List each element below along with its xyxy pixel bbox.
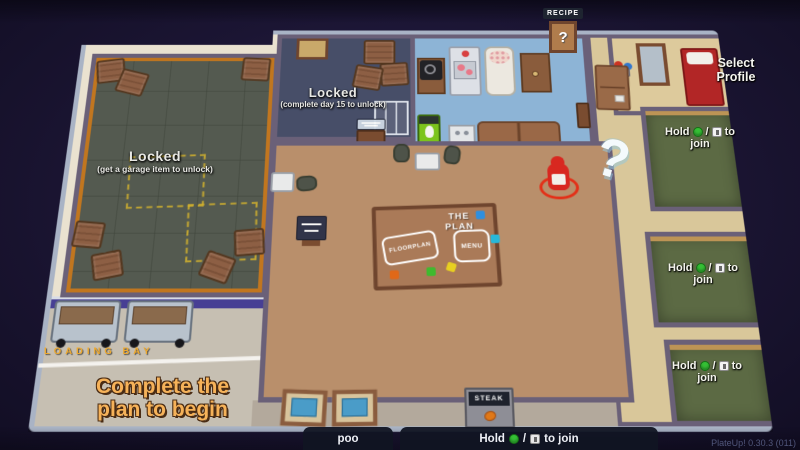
complete-plan-message: Complete the plan to begin <box>35 376 290 421</box>
join-bar-pill[interactable]: Hold / to join <box>400 427 658 450</box>
crate[interactable] <box>234 228 265 257</box>
outdoor-table[interactable] <box>332 389 378 426</box>
join-slash: / <box>706 126 709 138</box>
garage-locked-title: Locked <box>65 148 245 164</box>
gamepad-button-icon <box>700 361 710 371</box>
mirror[interactable] <box>635 43 670 86</box>
chair[interactable] <box>393 144 410 163</box>
kitchen-counter[interactable] <box>520 53 552 93</box>
cart-top <box>59 306 115 324</box>
storage-locked-label: Locked (complete day 15 to unlock) <box>263 85 403 110</box>
sink-tap <box>455 131 460 135</box>
bin-puff <box>425 126 434 138</box>
chair[interactable] <box>296 175 318 192</box>
crate[interactable] <box>90 249 124 281</box>
join-hold-text: Hold <box>672 360 696 372</box>
keyboard-key-icon <box>715 263 725 273</box>
chef-apron <box>551 174 565 185</box>
chip-yellow[interactable] <box>446 262 457 273</box>
loading-cart[interactable] <box>123 300 194 342</box>
join-slash: / <box>709 262 712 274</box>
menu-button[interactable]: MENU <box>453 229 492 262</box>
join-room-1[interactable] <box>640 107 747 211</box>
complete-plan-line2: plan to begin <box>35 399 290 422</box>
door-sign <box>357 119 386 130</box>
crate[interactable] <box>241 57 272 81</box>
steak-sign-label: STEAK <box>469 392 510 406</box>
sign-base <box>302 240 320 246</box>
keyboard-key-icon <box>712 127 722 137</box>
crate[interactable] <box>363 40 395 64</box>
garage-room <box>60 54 279 298</box>
join-join-text: join <box>635 138 765 150</box>
cart-top <box>132 306 188 324</box>
kitchen-door[interactable] <box>576 103 591 129</box>
steak-in-fridge <box>457 64 465 71</box>
table-menu-card <box>290 398 317 417</box>
fridge[interactable] <box>448 47 481 96</box>
player-name: poo <box>337 433 358 445</box>
fridge-window <box>453 61 476 79</box>
steak-menu-board[interactable]: STEAK <box>464 388 515 429</box>
join-tojoin-text: to join <box>544 433 579 445</box>
garage-locked-subtitle: (get a garage item to unlock) <box>95 164 215 174</box>
dining-room: THE PLAN FLOORPLAN MENU <box>258 141 635 402</box>
recipe-board[interactable]: RECIPE ? <box>543 8 583 53</box>
chip-green[interactable] <box>426 267 436 276</box>
join-slash: / <box>523 433 526 445</box>
wall-picture-frame <box>296 38 329 59</box>
chef-character <box>537 153 579 200</box>
steak-icon <box>483 410 497 423</box>
join-hold-text: Hold <box>479 433 505 445</box>
chef-head <box>550 156 565 168</box>
chair[interactable] <box>443 145 462 165</box>
white-table[interactable] <box>270 172 295 192</box>
join-join-text: join <box>638 274 768 286</box>
complete-plan-line1: Complete the <box>35 376 290 399</box>
keyboard-key-icon <box>530 434 540 444</box>
fridge-light <box>462 51 470 57</box>
version-text: PlateUp! 0.30.3 (011) <box>711 438 796 448</box>
storage-locked-subtitle: (complete day 15 to unlock) <box>278 100 388 110</box>
loading-bay-label: LOADING BAY <box>44 346 154 357</box>
join-slash: / <box>713 360 716 372</box>
select-profile-label: Select Profile <box>697 56 775 85</box>
cart-wheel <box>174 339 184 348</box>
join-to-text: to <box>732 360 742 372</box>
chip-orange[interactable] <box>390 270 400 279</box>
join-room-2-label: Hold/to join <box>638 262 768 286</box>
game-scene: THE PLAN FLOORPLAN MENU <box>0 0 800 450</box>
join-join-text: join <box>642 372 772 384</box>
keyboard-key-icon <box>719 361 729 371</box>
steak-in-fridge <box>466 69 473 75</box>
standing-sign[interactable] <box>296 216 327 240</box>
crate[interactable] <box>379 62 409 87</box>
floorplan-button[interactable]: FLOORPLAN <box>381 229 440 266</box>
recipe-label: RECIPE <box>543 8 583 19</box>
join-room-3-label: Hold/to join <box>642 360 772 384</box>
storage-locked-title: Locked <box>263 85 403 100</box>
join-to-text: to <box>728 262 738 274</box>
white-table[interactable] <box>415 153 441 171</box>
recipe-question-mark: ? <box>549 21 577 53</box>
garage-locked-label: Locked (get a garage item to unlock) <box>65 148 245 174</box>
chip-cyan[interactable] <box>490 234 500 243</box>
player-name-pill[interactable]: poo <box>303 427 393 450</box>
bin-lid <box>419 116 438 124</box>
gamepad-button-icon <box>696 263 706 273</box>
container-contents <box>489 51 510 64</box>
provisions-container[interactable] <box>484 47 516 96</box>
stove-counter[interactable] <box>417 58 446 94</box>
join-hold-text: Hold <box>668 262 692 274</box>
join-room-1-label: Hold/to join <box>635 126 765 150</box>
stove-burner-ring <box>424 64 435 74</box>
join-to-text: to <box>725 126 735 138</box>
chip-blue[interactable] <box>476 211 486 220</box>
gamepad-button-icon <box>509 434 519 444</box>
sink-tap <box>464 131 469 135</box>
trash-bin[interactable] <box>417 114 441 143</box>
table-menu-card <box>342 398 368 417</box>
join-hold-text: Hold <box>665 126 689 138</box>
loading-cart[interactable] <box>50 300 122 342</box>
cabinet-paper <box>615 95 625 102</box>
hallway-cabinet[interactable] <box>594 65 631 111</box>
plan-table[interactable]: THE PLAN FLOORPLAN MENU <box>372 203 503 291</box>
cabinet-shelf-line <box>600 86 625 88</box>
gamepad-button-icon <box>693 127 703 137</box>
counter-knob <box>532 71 539 77</box>
crate[interactable] <box>71 220 107 249</box>
